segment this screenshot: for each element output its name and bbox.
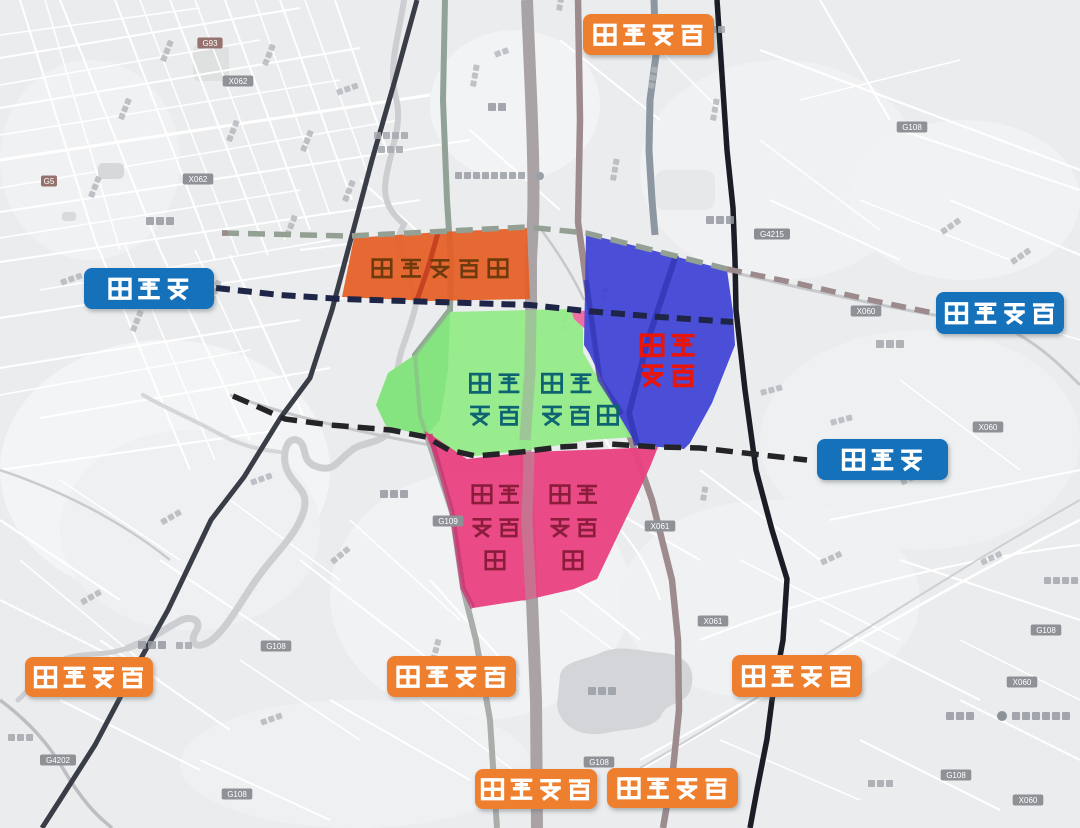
- svg-text:G108: G108: [902, 123, 922, 132]
- svg-text:G109: G109: [438, 517, 458, 526]
- svg-text:X060: X060: [979, 423, 998, 432]
- svg-text:X060: X060: [857, 307, 876, 316]
- svg-text:X061: X061: [704, 617, 723, 626]
- svg-text:G108: G108: [227, 790, 247, 799]
- svg-text:X062: X062: [229, 77, 248, 86]
- svg-text:G108: G108: [1036, 626, 1056, 635]
- svg-text:G108: G108: [946, 771, 966, 780]
- svg-text:G5: G5: [44, 177, 55, 186]
- svg-text:X060: X060: [1019, 796, 1038, 805]
- svg-text:X061: X061: [651, 522, 670, 531]
- svg-text:G108: G108: [266, 642, 286, 651]
- svg-text:G4202: G4202: [46, 756, 71, 765]
- svg-text:X062: X062: [189, 175, 208, 184]
- svg-text:G4215: G4215: [760, 230, 785, 239]
- svg-text:G108: G108: [589, 758, 609, 767]
- svg-text:G93: G93: [202, 39, 218, 48]
- svg-text:X060: X060: [1013, 678, 1032, 687]
